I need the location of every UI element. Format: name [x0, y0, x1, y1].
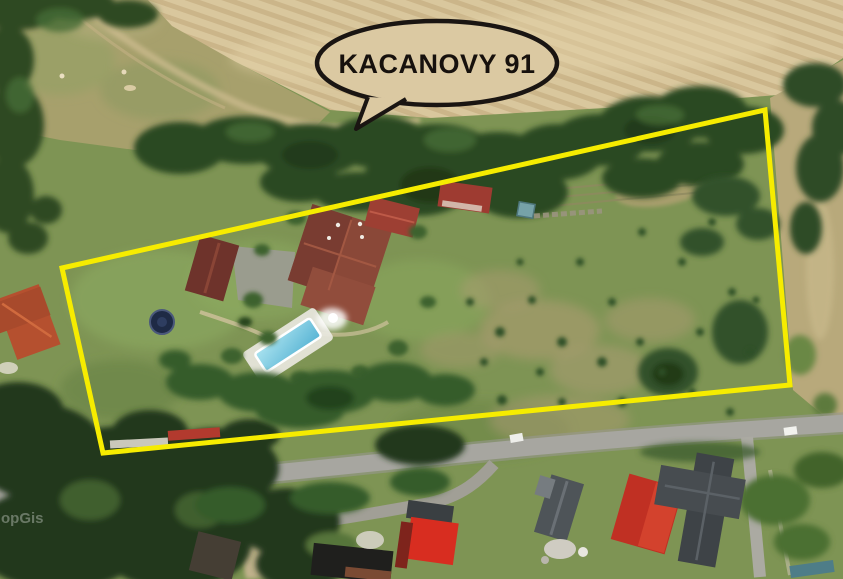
aerial-map-image: KACANOVY 91 opGis	[0, 0, 843, 579]
clutter	[544, 539, 576, 559]
meadow-object	[60, 74, 65, 79]
chimney	[360, 235, 364, 239]
chimney	[336, 223, 340, 227]
clutter	[578, 547, 588, 557]
meadow-patch	[124, 85, 136, 91]
meadow-object	[122, 70, 127, 75]
sun-glare-core	[328, 313, 338, 323]
watermark: opGis	[1, 510, 44, 527]
white-path-blob	[356, 531, 384, 549]
aerial-scene: KACANOVY 91 opGis	[0, 0, 843, 579]
red-house-roof	[405, 517, 458, 565]
trampoline	[150, 310, 174, 334]
callout-label: KACANOVY 91	[338, 49, 535, 79]
clutter	[541, 556, 549, 564]
chimney	[358, 222, 362, 226]
chimney	[327, 236, 331, 240]
trampoline-center	[157, 317, 167, 327]
teal-garden-cover	[517, 202, 535, 219]
